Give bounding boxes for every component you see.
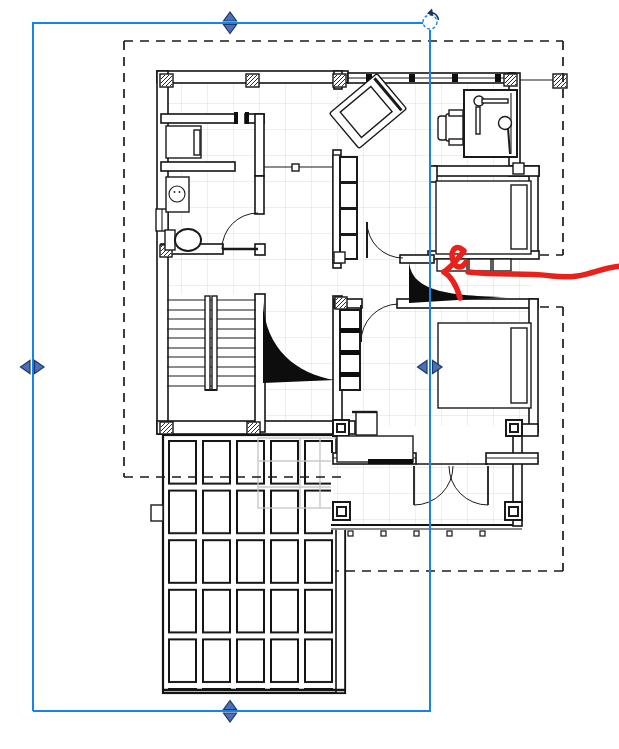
rotation-control-arrow[interactable]	[427, 9, 439, 21]
floor-plan-svg	[0, 0, 619, 749]
drawing-canvas[interactable]	[0, 0, 619, 749]
toilet	[165, 229, 201, 251]
nightstand	[352, 412, 377, 435]
desk-lamp	[499, 117, 512, 130]
railing-posts	[348, 531, 485, 536]
study-desk	[464, 90, 517, 157]
shelf-wardrobe	[340, 310, 360, 390]
pergola-terrace	[151, 435, 345, 693]
balcony	[331, 453, 522, 536]
double-bed-2	[438, 323, 531, 408]
rotation-control-circle[interactable]	[423, 15, 437, 29]
stair-rail	[205, 296, 210, 390]
writing-desk	[337, 436, 413, 464]
sofa	[333, 155, 357, 263]
double-bed-1	[436, 181, 531, 254]
washing-machine	[166, 177, 189, 212]
terrace-edge-marker	[151, 505, 163, 521]
